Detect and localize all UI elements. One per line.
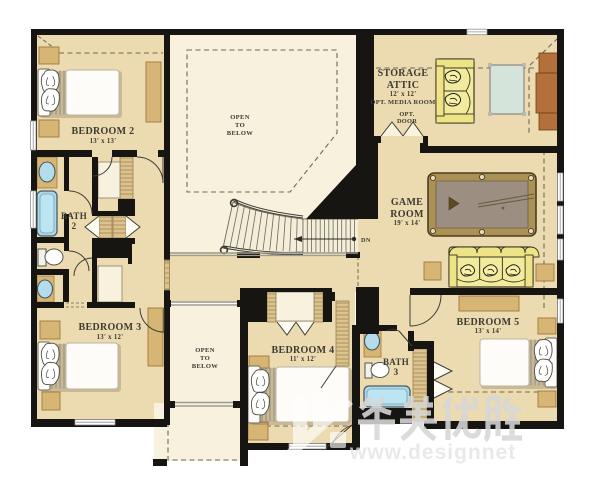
svg-text:BEDROOM 5: BEDROOM 5: [457, 317, 520, 328]
svg-text:13' x 12': 13' x 12': [97, 334, 124, 341]
svg-text:OPEN: OPEN: [195, 347, 215, 354]
svg-text:TO: TO: [200, 355, 210, 362]
svg-text:2: 2: [72, 221, 77, 231]
svg-text:ATTIC: ATTIC: [387, 80, 419, 91]
svg-text:BATH: BATH: [61, 211, 87, 221]
svg-text:13' x 14': 13' x 14': [475, 328, 502, 335]
svg-text:TO: TO: [235, 122, 245, 129]
svg-text:DN: DN: [361, 237, 371, 244]
svg-text:DOOR: DOOR: [397, 118, 417, 125]
svg-text:13' x 13': 13' x 13': [90, 138, 117, 145]
svg-text:GAME: GAME: [391, 197, 423, 208]
svg-text:BATH: BATH: [383, 357, 409, 367]
svg-text:BEDROOM 2: BEDROOM 2: [72, 126, 135, 137]
svg-text:BEDROOM 4: BEDROOM 4: [272, 345, 335, 356]
svg-text:ROOM: ROOM: [390, 209, 424, 220]
svg-text:STORAGE: STORAGE: [378, 68, 429, 79]
svg-text:www.designnet: www.designnet: [349, 441, 516, 464]
svg-text:19' x 14': 19' x 14': [394, 220, 421, 227]
svg-text:BELOW: BELOW: [192, 363, 219, 370]
svg-text:OPEN: OPEN: [230, 114, 250, 121]
svg-text:BEDROOM 3: BEDROOM 3: [79, 322, 142, 333]
svg-text:BELOW: BELOW: [227, 130, 254, 137]
svg-text:11' x 12': 11' x 12': [290, 356, 317, 363]
svg-text:12' x 12': 12' x 12': [390, 91, 417, 98]
svg-text:OPT. MEDIA ROOM: OPT. MEDIA ROOM: [370, 99, 435, 106]
svg-text:OPT.: OPT.: [399, 111, 414, 118]
svg-text:3: 3: [394, 367, 399, 377]
